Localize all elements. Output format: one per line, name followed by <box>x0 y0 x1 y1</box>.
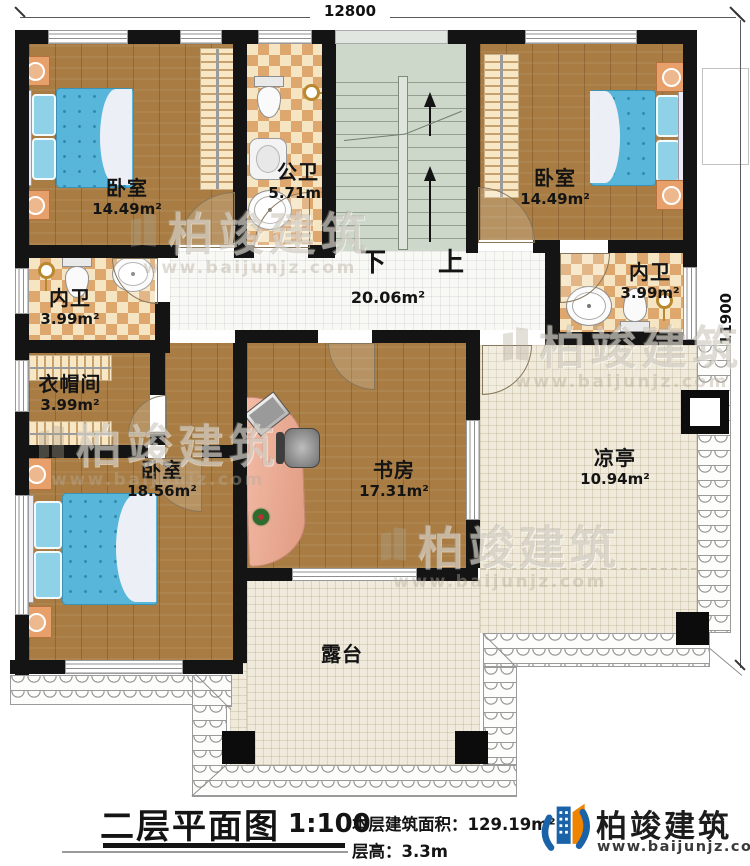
wall <box>545 332 697 345</box>
terrace-column <box>676 612 709 645</box>
wardrobe <box>200 48 235 190</box>
wall <box>202 445 235 458</box>
bed-blanket <box>100 89 132 185</box>
window <box>48 30 128 44</box>
terrace-column <box>222 731 255 764</box>
bed-pillow <box>32 138 56 180</box>
floor-height-text: 层高：3.3m <box>352 838 448 862</box>
dim-tick <box>14 6 25 17</box>
bed-pillow <box>32 94 56 136</box>
window <box>466 420 480 520</box>
stair-arrow-stem <box>429 106 431 136</box>
plant-icon <box>250 506 272 528</box>
wall <box>466 520 480 568</box>
bed-pillow <box>656 95 680 137</box>
label-bedroom-top-left: 卧室 14.49m² <box>62 178 192 218</box>
label-bedroom-bottom-left: 卧室 18.56m² <box>100 460 224 500</box>
wall <box>417 568 478 581</box>
brand-logo: 柏竣建筑 www.baijunjz.com <box>538 799 750 861</box>
office-chair <box>284 428 320 468</box>
label-bedroom-top-right: 卧室 14.49m² <box>495 168 615 208</box>
label-terrace: 露台 <box>302 644 382 666</box>
window <box>65 660 183 674</box>
wall <box>15 445 148 458</box>
stair-arrow-stem <box>429 180 431 242</box>
wall <box>247 568 292 581</box>
wall <box>608 240 697 253</box>
bed-pillow <box>34 551 62 599</box>
plan-title: 二层平面图 <box>100 799 280 848</box>
roof-outline <box>702 68 749 165</box>
stair-landing <box>336 44 466 70</box>
wall <box>466 343 480 420</box>
wall <box>155 245 170 258</box>
label-bath-right: 内卫 3.99m² <box>605 262 695 302</box>
wall <box>222 30 258 44</box>
label-hallway-area: 20.06m² <box>343 288 433 307</box>
wall <box>15 245 178 258</box>
toilet <box>252 76 286 118</box>
eave-bottom <box>192 765 517 797</box>
cloakroom-wardrobe <box>29 421 112 447</box>
bed-pillow <box>656 140 680 182</box>
bed-bottom-left <box>20 493 156 603</box>
label-pavilion: 凉亭 10.94m² <box>553 448 677 488</box>
stair-rail <box>398 76 408 250</box>
window <box>15 495 29 615</box>
stair-arrow-icon <box>424 92 436 107</box>
wall <box>448 30 525 44</box>
wall <box>233 44 247 245</box>
wall <box>533 240 560 253</box>
right-dimension-label: 11900 <box>717 288 735 350</box>
stair-arrow-icon <box>424 166 436 181</box>
office-chair-back <box>276 432 284 464</box>
wall <box>683 30 697 267</box>
nightstand <box>656 62 686 92</box>
floor-terrace <box>247 580 480 765</box>
floor-plan: 12800 11900 <box>0 0 750 866</box>
wall <box>10 660 65 674</box>
title-underline <box>103 843 345 848</box>
right-dimension-line <box>740 20 741 668</box>
terrace-column <box>455 731 488 764</box>
floor-pavilion <box>480 345 697 633</box>
pavilion-terrace-boundary <box>480 568 697 570</box>
bed-blanket <box>116 494 156 602</box>
brand-url: www.baijunjz.com <box>597 839 750 855</box>
shower-head-icon <box>303 84 320 101</box>
shower-head-icon <box>38 262 55 279</box>
stair-up-label: 上 <box>438 242 464 279</box>
wall <box>312 30 335 44</box>
top-dimension-label: 12800 <box>310 2 390 20</box>
wall <box>466 240 478 253</box>
stair-window <box>335 30 448 44</box>
terrace-door-window <box>292 568 417 581</box>
wall <box>15 340 170 353</box>
nightstand <box>656 180 686 210</box>
title-underline-thin <box>62 851 348 853</box>
wall <box>545 253 560 332</box>
label-bath-left: 内卫 3.99m² <box>25 288 115 328</box>
wall <box>322 44 336 255</box>
wall <box>128 30 180 44</box>
stair-down-label: 下 <box>360 242 386 279</box>
eave-step-vertical <box>483 667 517 765</box>
pavilion-column-core <box>690 398 720 426</box>
wall <box>150 345 165 395</box>
bed-top-left <box>20 86 132 188</box>
window <box>525 30 637 44</box>
label-study: 书房 17.31m² <box>332 460 456 500</box>
title-block: 二层平面图 1:100 本层建筑面积：129.19m² 层高：3.3m 柏竣建筑… <box>0 795 750 866</box>
label-public-bath: 公卫 5.71m² <box>258 162 338 202</box>
brand-logo-icon <box>538 799 594 857</box>
wall <box>235 330 318 343</box>
eave-right-vertical <box>697 345 731 633</box>
wall <box>233 343 247 663</box>
wall <box>234 245 254 258</box>
window <box>180 30 222 44</box>
wall <box>372 330 480 343</box>
window <box>258 30 312 44</box>
floor-vestibule <box>165 343 233 458</box>
bed-pillow <box>34 501 62 549</box>
eave-below-bedroom <box>10 675 197 705</box>
wall <box>15 30 29 268</box>
floor-area-text: 本层建筑面积：129.19m² <box>352 811 556 835</box>
label-cloakroom: 衣帽间 3.99m² <box>25 374 115 414</box>
